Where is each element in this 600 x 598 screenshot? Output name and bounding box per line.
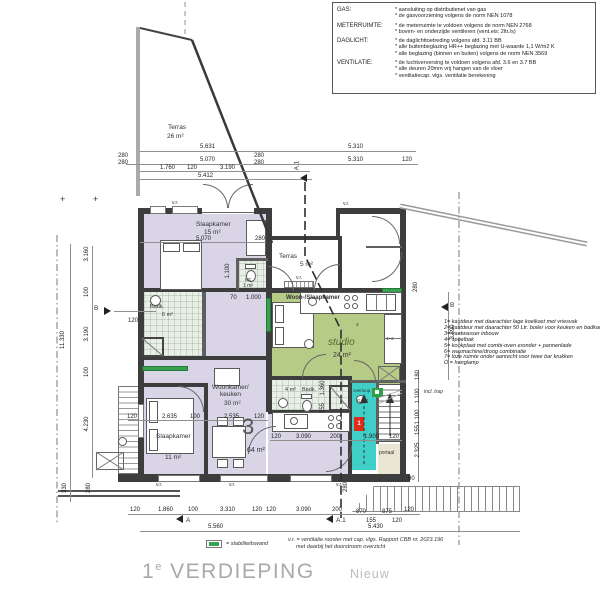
dim-label: 1.100 xyxy=(225,258,231,284)
dim-label: 870 xyxy=(356,509,366,515)
title-floor: 1 xyxy=(142,560,155,583)
legend-label: = stabiliteitswand xyxy=(226,541,268,548)
section-marker-b: B xyxy=(450,302,454,309)
window xyxy=(290,475,332,482)
room-area: 6 m² xyxy=(357,399,368,406)
b-line xyxy=(114,311,156,312)
dim-label: 280 xyxy=(255,236,265,242)
room-area: 24 m² xyxy=(333,352,351,359)
stove-burner xyxy=(352,303,358,309)
dim-label: 5.070 xyxy=(196,236,211,242)
room-label: portaal xyxy=(379,450,394,457)
spec-line: * de meterruimte te voldoen volgens de n… xyxy=(395,23,532,29)
wall-segment xyxy=(336,208,406,214)
kitchen-tag: 1+2 xyxy=(386,335,394,342)
dim-label: 100 xyxy=(84,359,90,385)
section-marker-b-icon xyxy=(441,303,448,311)
room-area: 6 m² xyxy=(162,312,173,319)
dim-label: 120 xyxy=(252,507,262,513)
stability-wall xyxy=(142,366,188,371)
dim-label: 11.330 xyxy=(60,327,66,353)
wall-segment xyxy=(366,246,402,248)
floor-plan-drawing: GAS: * aansluiting op distributienet van… xyxy=(0,0,600,598)
dim-label: 90 xyxy=(408,476,415,482)
dining-table xyxy=(212,426,246,458)
dim-label: 70 xyxy=(230,295,237,301)
spec-label: METERRUIMTE: xyxy=(337,23,395,36)
vent-label: v.r. xyxy=(172,200,178,207)
dim-label: 5.560 xyxy=(208,524,223,530)
spec-row: DAGLICHT: * de daglichttoetreding volgen… xyxy=(337,38,593,57)
section-marker-a1-icon xyxy=(326,515,333,523)
stove-burner xyxy=(352,295,358,301)
dim-label: 280 xyxy=(343,474,349,500)
dim-line xyxy=(92,246,93,478)
spec-box: GAS: * aansluiting op distributienet van… xyxy=(332,2,596,94)
dim-label: 120 xyxy=(402,157,412,163)
washbasin xyxy=(278,398,288,408)
meter-box-green-dot xyxy=(375,390,379,394)
section-marker-a: A xyxy=(186,517,190,524)
toilet-bowl xyxy=(302,400,312,412)
note-item: O = hanglamp xyxy=(444,361,600,367)
section-marker-a1-icon xyxy=(300,174,307,182)
dim-line xyxy=(128,514,420,515)
vent-label: v.r. xyxy=(336,482,342,489)
dim-label: 120 xyxy=(392,518,402,524)
legend-swatch-fill xyxy=(209,542,219,546)
stove-burner xyxy=(344,303,350,309)
pillow xyxy=(163,243,180,252)
legend-note: v.r. = ventilatie rooster met cap. vlgs.… xyxy=(288,537,443,544)
dim-label: 330 xyxy=(62,475,68,501)
oven-divider xyxy=(376,294,377,311)
dim-label: 155 xyxy=(320,395,326,421)
room-sub-label: studio xyxy=(328,339,355,346)
dim-label: 120 xyxy=(127,414,137,420)
room-label: overloop xyxy=(353,387,370,394)
spec-line: * alle buitenbeglazing HR++ beglazing me… xyxy=(395,44,555,50)
dim-label: 280 xyxy=(86,475,92,501)
wall-segment xyxy=(236,258,268,261)
dim-label: 100 xyxy=(190,414,200,420)
pillow xyxy=(275,327,284,345)
dim-label: 875 xyxy=(382,509,392,515)
spec-line: * alle beglazing (binnen en buiten) volg… xyxy=(395,51,555,57)
room-area: 11 m² xyxy=(165,454,181,461)
spec-lines: * de luchtverversing te voldoen volgens … xyxy=(395,60,536,79)
window xyxy=(138,404,144,438)
toilet-tank xyxy=(245,264,256,269)
ceiling-symbol xyxy=(118,437,127,446)
dim-label: 120 xyxy=(389,434,399,440)
notes-list: 1= kastdeur met daarachter lage koelkast… xyxy=(444,320,600,367)
room-area: 5 m² xyxy=(300,261,313,268)
shower xyxy=(141,337,164,357)
dim-label: 2.325 xyxy=(415,437,421,463)
external-stair-hatch xyxy=(352,486,520,512)
dim-label: 100 xyxy=(188,507,198,513)
dim-label: 2.535 xyxy=(224,414,239,420)
vent-label: v.r. xyxy=(296,275,302,282)
vent-label: v.r. xyxy=(229,482,235,489)
dim-line xyxy=(140,151,416,152)
door-opening-sill xyxy=(202,212,254,213)
spec-line: * de gasvoorziening volgens de norm NEN … xyxy=(395,13,512,19)
room-label: keuken xyxy=(220,391,241,398)
title-sup: e xyxy=(155,561,163,573)
door-arc xyxy=(228,184,253,208)
void-box xyxy=(96,452,124,470)
dim-label: 5.430 xyxy=(368,524,383,530)
kitchen-sink xyxy=(290,417,298,425)
dim-line xyxy=(140,531,520,532)
dim-label: 120 xyxy=(128,318,138,324)
dim-label: 3.160 xyxy=(84,241,90,267)
dim-line xyxy=(140,171,310,172)
dim-label: 200 xyxy=(332,507,342,513)
dim-label: 120 xyxy=(271,434,281,440)
spec-lines: * de daglichttoetreding volgens afd. 3.1… xyxy=(395,38,555,57)
dim-label: 120 xyxy=(130,507,140,513)
spec-lines: * aansluiting op distributienet van gas … xyxy=(395,7,512,20)
dim-line xyxy=(140,242,266,243)
room-label: Woon-/Slaapkamer xyxy=(286,295,340,302)
stove-burner xyxy=(328,423,334,429)
dim-label: 1.000 xyxy=(246,295,261,301)
apartment-number: 3 xyxy=(242,423,254,430)
room-label: Terras xyxy=(168,124,186,131)
section-marker-a1: A.1 xyxy=(336,517,346,524)
title-word: VERDIEPING xyxy=(170,560,315,583)
dim-label: 1.760 xyxy=(160,165,175,171)
room-area: 15 m² xyxy=(204,229,221,236)
spec-row: GAS: * aansluiting op distributienet van… xyxy=(337,7,593,20)
dim-label: 120 xyxy=(187,165,197,171)
section-marker-b-icon xyxy=(104,307,111,315)
dim-label: 280 xyxy=(254,153,264,159)
dim-line xyxy=(70,244,71,502)
spec-label: DAGLICHT: xyxy=(337,38,395,57)
room-area: 30 m² xyxy=(224,400,241,407)
pillow xyxy=(275,305,284,323)
spec-line: * boven- en onderzijde ventileren (vent.… xyxy=(395,29,532,35)
level-mark: + xyxy=(93,196,98,203)
legend-note: met daarbij het doorstroom overzicht xyxy=(296,544,385,551)
stove-burner xyxy=(344,295,350,301)
dim-label: 5.631 xyxy=(200,144,215,150)
door-arc xyxy=(314,264,340,290)
spec-label: GAS: xyxy=(337,7,395,20)
wall-segment xyxy=(204,383,208,474)
dim-label: 120 xyxy=(404,507,414,513)
dim-label: 280 xyxy=(118,160,128,166)
window xyxy=(172,206,198,214)
dim-label: 2.635 xyxy=(162,414,177,420)
room-label: Terras xyxy=(279,253,297,260)
door-opening xyxy=(202,208,254,214)
room-area: 4 m² xyxy=(285,387,296,394)
wall-segment xyxy=(236,258,239,290)
meter-box-red: 1 xyxy=(354,417,364,431)
apartment-area: 64 m² xyxy=(247,447,265,454)
stove-burner xyxy=(336,415,342,421)
terrace-railing xyxy=(268,236,342,240)
door-arc xyxy=(268,266,294,291)
door-arc xyxy=(372,216,400,244)
window xyxy=(150,206,166,214)
level-mark: + xyxy=(60,196,65,203)
dim-label: 1.860 xyxy=(158,507,173,513)
room-area: 26 m² xyxy=(167,133,184,140)
spec-line: * ventilatiecap. vlgs. ventilatie bereke… xyxy=(395,73,536,79)
dim-label: 4.230 xyxy=(84,411,90,437)
dim-label: 280 xyxy=(413,274,419,300)
ceiling-symbol xyxy=(304,339,314,349)
dim-label: 3.190 xyxy=(220,165,235,171)
chair xyxy=(233,459,244,468)
section-marker-a-icon xyxy=(176,515,183,523)
dim-label: 3.310 xyxy=(220,507,235,513)
section-marker-b: B xyxy=(94,305,98,312)
dim-label: 100 xyxy=(84,279,90,305)
dim-line xyxy=(270,440,402,441)
dim-label: 3.090 xyxy=(296,434,311,440)
balcony-edge xyxy=(58,490,180,497)
dim-label: 280 xyxy=(118,153,128,159)
stove-burner xyxy=(336,423,342,429)
oven-divider xyxy=(386,294,387,311)
dim-label: 3.090 xyxy=(296,507,311,513)
stability-wall xyxy=(266,298,271,332)
spec-label: VENTILATIE: xyxy=(337,60,395,79)
spec-row: METERRUIMTE: * de meterruimte te voldoen… xyxy=(337,23,593,36)
pillow xyxy=(183,243,200,252)
dim-label: 200 xyxy=(330,434,340,440)
room-label: Woonkamer/ xyxy=(212,384,249,391)
wall-segment xyxy=(202,290,206,358)
door-arc xyxy=(203,184,228,208)
spec-row: VENTILATIE: * de luchtverversing te vold… xyxy=(337,60,593,79)
dim-label: 120 xyxy=(266,507,276,513)
dim-label: 5.070 xyxy=(200,157,215,163)
wall-segment xyxy=(140,383,206,387)
vent-label: v.r. xyxy=(343,201,349,208)
shower xyxy=(329,385,351,411)
room-area: 1 m² xyxy=(243,283,253,290)
dim-label: 1.900 xyxy=(364,434,379,440)
room-label: Badk. xyxy=(150,304,164,311)
hall-apartment-1 xyxy=(206,292,266,356)
dim-label: 3.190 xyxy=(84,321,90,347)
dim-label: 5.310 xyxy=(348,144,363,150)
dim-label: 5.310 xyxy=(348,157,363,163)
drawing-title: 1e VERDIEPING Nieuw xyxy=(142,560,390,584)
window xyxy=(158,475,200,482)
dim-label: 280 xyxy=(254,160,264,166)
stair-note: incl. trap xyxy=(424,389,443,396)
dim-label: 5.412 xyxy=(198,173,213,179)
room-label: Badk. xyxy=(302,387,316,394)
chair xyxy=(217,459,228,468)
window xyxy=(220,475,268,482)
room-portaal xyxy=(378,444,402,474)
kitchen-tag: 3 xyxy=(356,321,359,328)
room-label: Slaapkamer xyxy=(156,433,191,440)
room-label: Slaapkamer xyxy=(196,221,231,228)
spec-lines: * de meterruimte te voldoen volgens de n… xyxy=(395,23,532,36)
stove-burner xyxy=(328,415,334,421)
dim-label: 120 xyxy=(254,414,264,420)
vent-label: v.r. xyxy=(156,482,162,489)
door-arc xyxy=(372,252,402,282)
title-status: Nieuw xyxy=(350,567,390,581)
dim-line xyxy=(140,179,312,180)
toilet-tank xyxy=(301,394,312,399)
oven-unit xyxy=(366,294,396,311)
void-box xyxy=(378,366,400,382)
